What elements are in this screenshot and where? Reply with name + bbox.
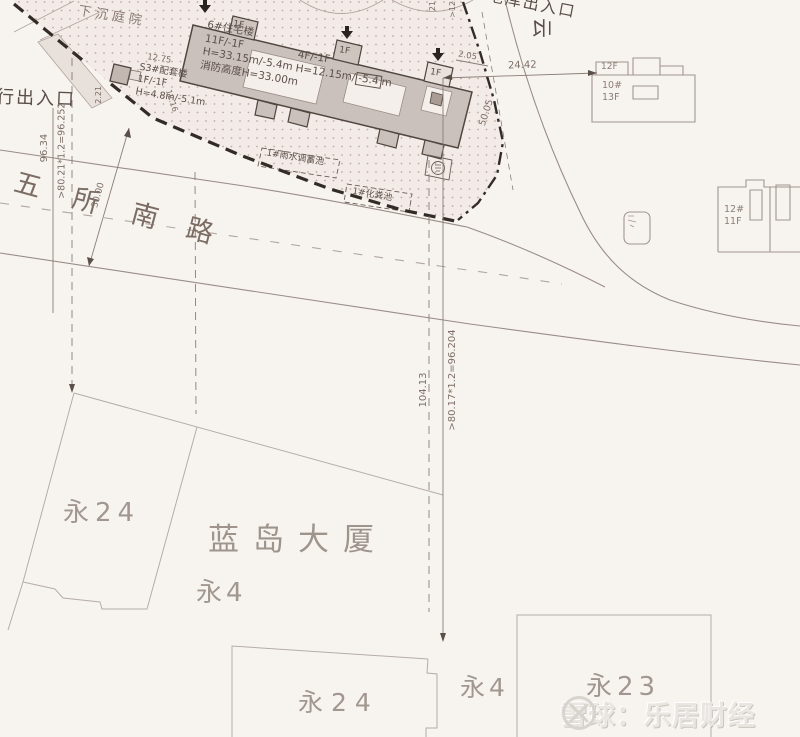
dim-80-21-formula: >80.21*1.2=96.252 xyxy=(56,96,67,206)
building-12-label: 12# 11F xyxy=(724,204,744,229)
parcel-yong4-label: 永4 xyxy=(196,578,247,609)
dim-21-partial: 21. xyxy=(428,0,438,15)
parcel-bottom-yong24-label: 永24 xyxy=(298,688,379,718)
site-plan-drawing: 下沉庭院 行出入口 6#住宅楼 11F/-1F H=33.15m/-5.4m 消… xyxy=(0,0,800,737)
floor-1f-tag: 1F xyxy=(232,19,245,32)
xueqiu-logo-icon xyxy=(560,694,598,732)
parcel-yong24-label: 永24 xyxy=(63,498,140,529)
parcel-bottom-yong4-label: 永4 xyxy=(460,673,509,703)
dim-104-13: 104.13 xyxy=(418,365,430,415)
yun-label: 云 xyxy=(530,18,554,38)
building-10-top-tag: 12F xyxy=(601,62,618,73)
building-10-label: 10# 13F xyxy=(602,80,622,105)
dim-96-34: 96.34 xyxy=(39,118,51,178)
dim-24-42: 24.42 xyxy=(508,60,537,73)
dim-2-21: 2.21 xyxy=(94,80,104,110)
dim-80-17-formula: >80.17*1.2=96.204 xyxy=(447,324,459,436)
dim-12-15-partial: >12.15m*1.2 xyxy=(448,0,458,26)
landao-building-label: 蓝岛大厦 xyxy=(208,522,388,559)
plan-linework xyxy=(0,0,800,737)
floor-1f-tag: 1F xyxy=(429,67,442,80)
watermark: 雪球：乐居财经 xyxy=(560,694,756,733)
floor-1f-tag: 1F xyxy=(338,45,351,58)
